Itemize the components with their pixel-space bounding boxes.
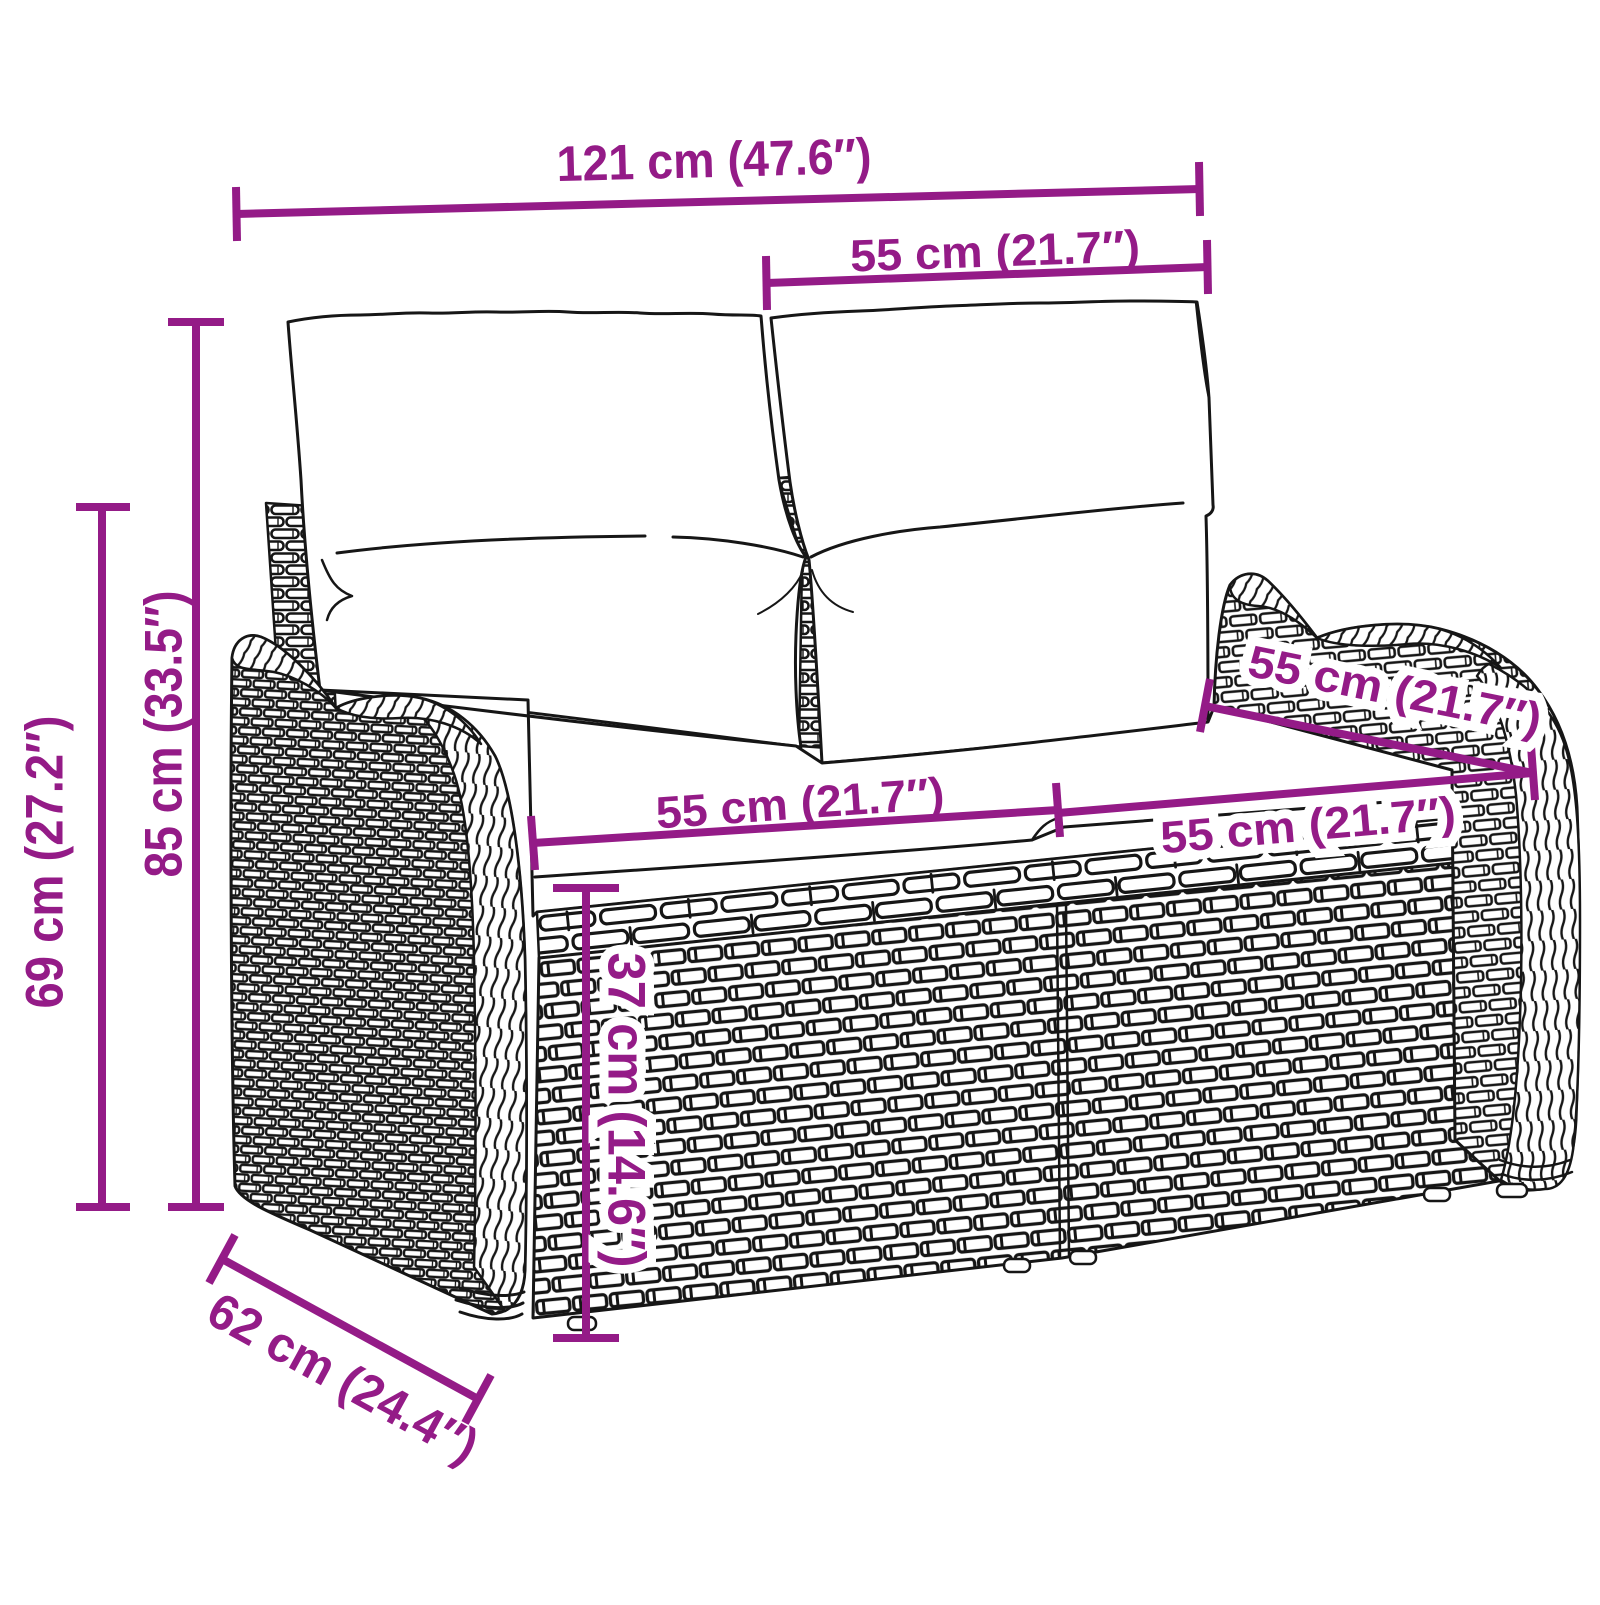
svg-text:37 cm (14.6″): 37 cm (14.6″) xyxy=(597,953,656,1268)
svg-text:85 cm (33.5″): 85 cm (33.5″) xyxy=(135,591,194,878)
svg-text:55 cm (21.7″): 55 cm (21.7″) xyxy=(849,220,1141,281)
svg-text:69 cm (27.2″): 69 cm (27.2″) xyxy=(16,716,75,1009)
svg-text:121 cm (47.6″): 121 cm (47.6″) xyxy=(556,128,872,192)
